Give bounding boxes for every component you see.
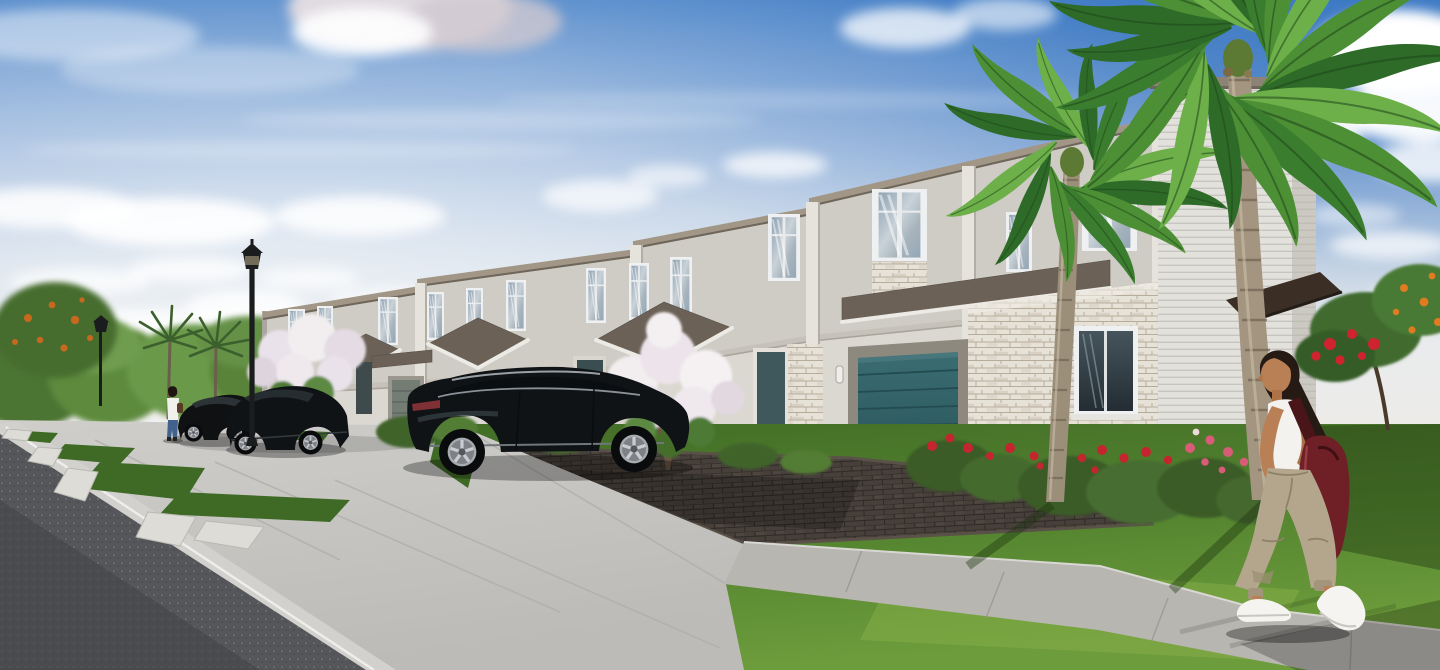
window bbox=[586, 268, 606, 323]
scene-canvas bbox=[0, 0, 1440, 670]
entry-door-small bbox=[356, 362, 372, 414]
woman-shadow bbox=[1226, 625, 1350, 643]
window bbox=[768, 214, 800, 281]
stone-window bbox=[1071, 326, 1141, 420]
window bbox=[629, 263, 649, 320]
window bbox=[427, 292, 444, 340]
sedan-wheel bbox=[184, 423, 202, 441]
window bbox=[506, 280, 526, 331]
window bbox=[872, 189, 927, 261]
suv-wheel bbox=[439, 429, 485, 475]
crossover-wheel bbox=[299, 431, 323, 455]
window bbox=[378, 297, 398, 345]
rendering-scene: Photorealistic rendering of a row of two… bbox=[0, 0, 1440, 670]
suv-wheel bbox=[611, 426, 657, 472]
